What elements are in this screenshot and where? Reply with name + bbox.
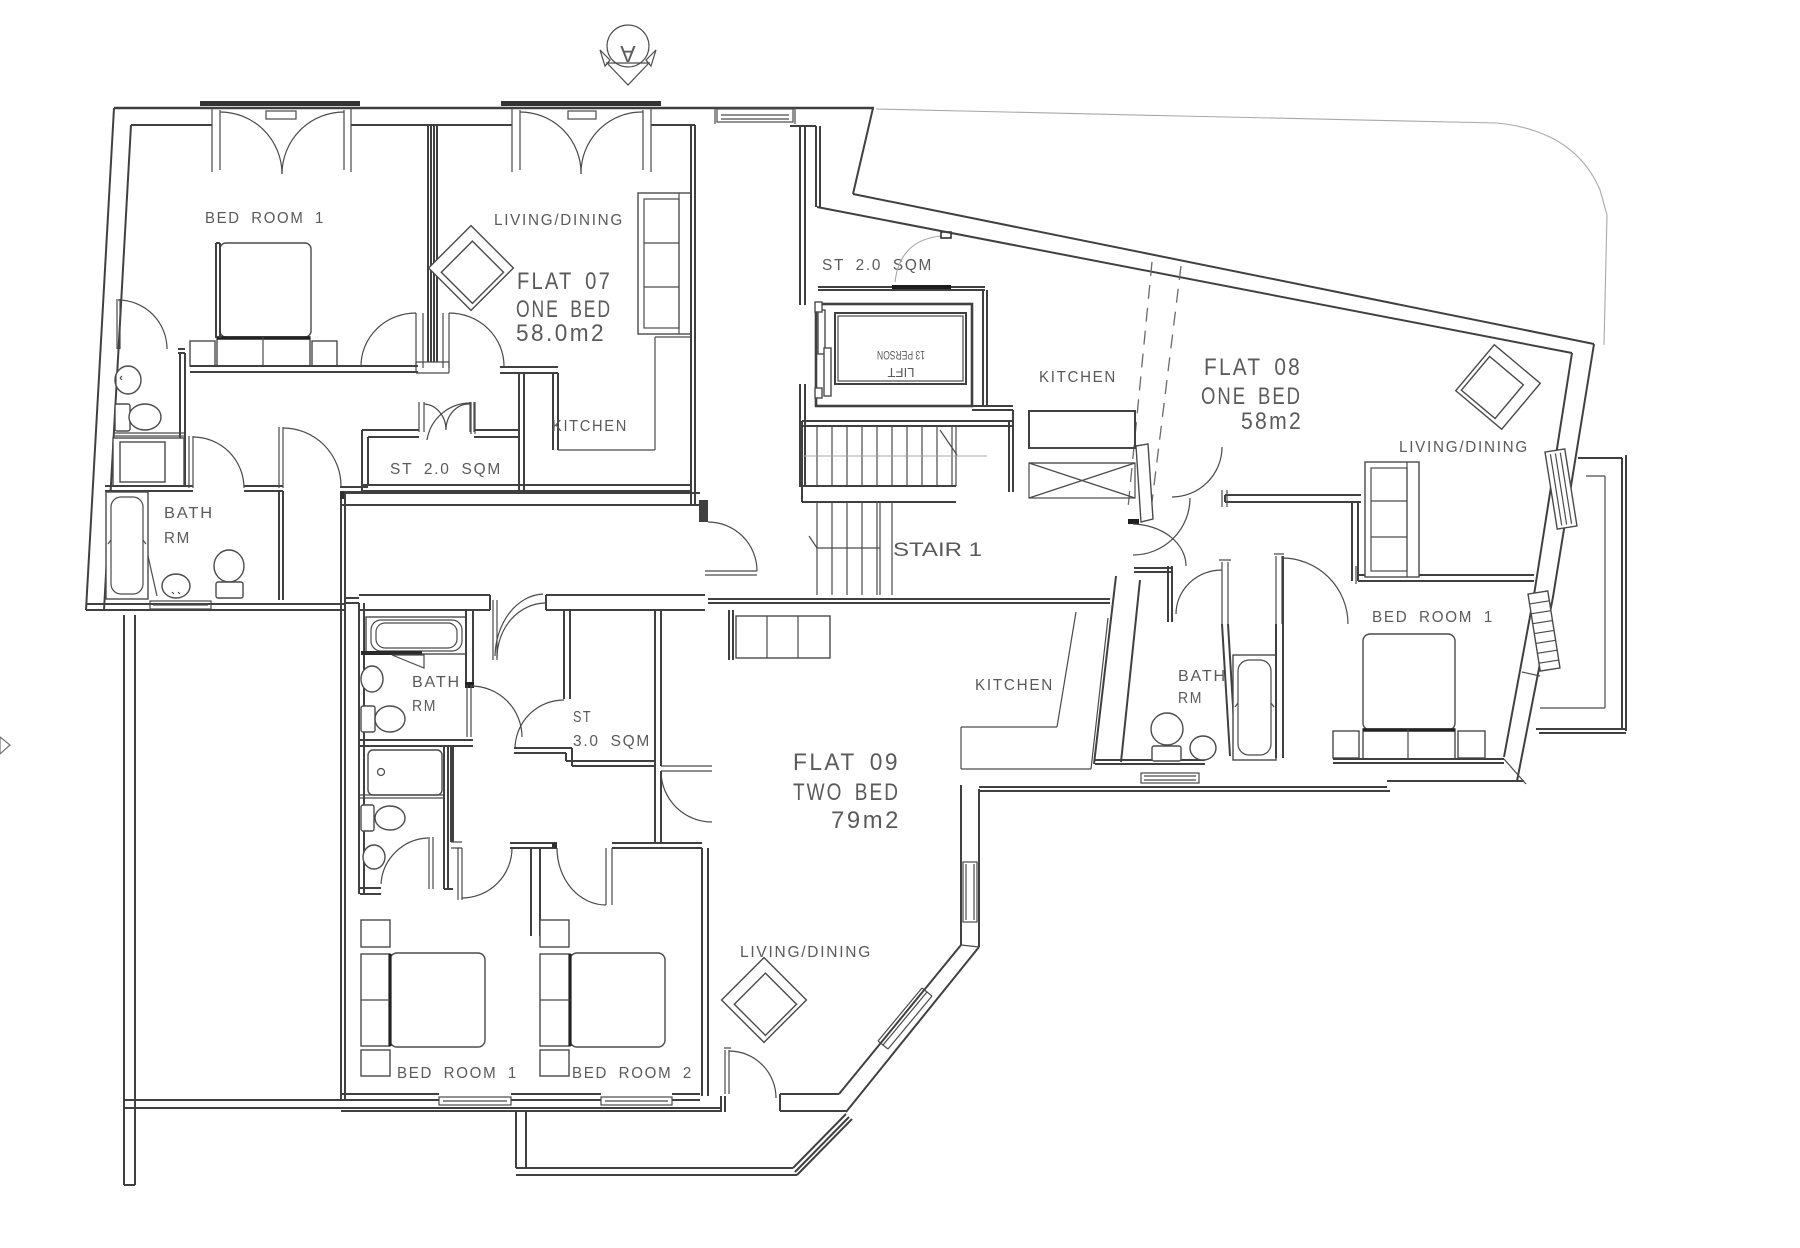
svg-text:KITCHEN: KITCHEN [975, 677, 1054, 694]
svg-text:LIVING/DINING: LIVING/DINING [494, 212, 624, 229]
svg-text:RM: RM [412, 698, 437, 715]
svg-text:LIFT: LIFT [887, 365, 914, 380]
svg-text:58.0m2: 58.0m2 [516, 320, 606, 347]
svg-text:3.0 SQM: 3.0 SQM [573, 733, 651, 750]
svg-text:KITCHEN: KITCHEN [1039, 369, 1117, 386]
svg-text:FLAT 08: FLAT 08 [1204, 354, 1302, 381]
svg-text:RM: RM [164, 530, 191, 547]
svg-text:KITCHEN: KITCHEN [552, 418, 628, 435]
svg-text:FLAT 09: FLAT 09 [793, 749, 900, 776]
svg-text:58m2: 58m2 [1241, 408, 1303, 435]
svg-text:BATH: BATH [1178, 668, 1227, 685]
svg-text:RM: RM [1178, 690, 1203, 707]
svg-text:BED ROOM 2: BED ROOM 2 [572, 1065, 693, 1082]
svg-text:79m2: 79m2 [831, 807, 901, 834]
svg-text:ONE BED: ONE BED [516, 296, 612, 323]
svg-text:BATH: BATH [164, 505, 214, 522]
svg-text:BED ROOM 1: BED ROOM 1 [397, 1065, 518, 1082]
svg-text:TWO BED: TWO BED [793, 779, 900, 806]
svg-text:LIVING/DINING: LIVING/DINING [1399, 439, 1529, 456]
svg-text:13 PERSON: 13 PERSON [877, 348, 925, 362]
svg-text:BATH: BATH [412, 674, 461, 691]
svg-text:BED ROOM 1: BED ROOM 1 [1372, 609, 1494, 626]
svg-text:ONE BED: ONE BED [1201, 383, 1302, 410]
svg-text:ST: ST [573, 709, 592, 726]
svg-text:ST 2.0 SQM: ST 2.0 SQM [822, 257, 933, 274]
svg-text:STAIR 1: STAIR 1 [893, 540, 982, 561]
svg-text:LIVING/DINING: LIVING/DINING [740, 944, 872, 961]
svg-text:ST 2.0 SQM: ST 2.0 SQM [390, 461, 502, 478]
svg-text:FLAT 07: FLAT 07 [517, 268, 612, 295]
svg-text:BED ROOM 1: BED ROOM 1 [205, 210, 325, 227]
